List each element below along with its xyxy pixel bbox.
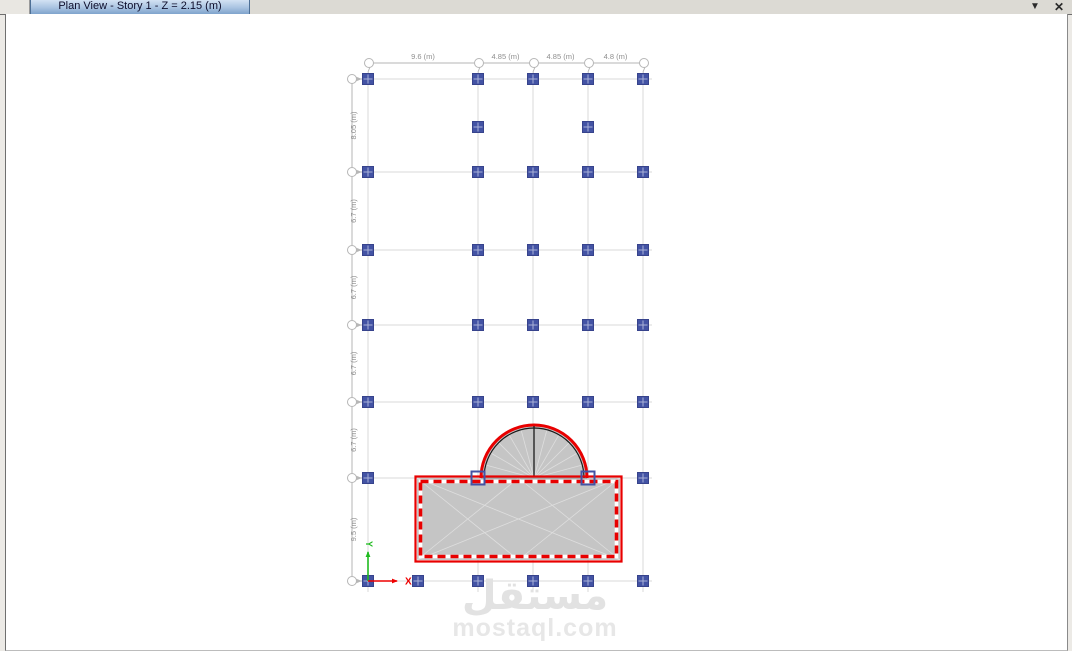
grid-bubble-top — [530, 59, 539, 68]
grid-bubble-left — [348, 168, 357, 177]
column-marker[interactable] — [473, 320, 484, 331]
x-axis-label: X — [405, 577, 412, 588]
y-axis-label: Y — [364, 541, 374, 547]
dimension-label-left: 6.7 (m) — [349, 199, 358, 223]
column-marker[interactable] — [583, 320, 594, 331]
column-marker[interactable] — [473, 74, 484, 85]
column-marker[interactable] — [473, 167, 484, 178]
column-marker[interactable] — [528, 167, 539, 178]
dimension-label-left: 6.7 (m) — [349, 351, 358, 375]
grid-bubble-left — [348, 577, 357, 586]
column-marker[interactable] — [583, 245, 594, 256]
grid-bubble-top — [475, 59, 484, 68]
grid-bubble-top — [640, 59, 649, 68]
column-marker[interactable] — [363, 397, 374, 408]
column-marker[interactable] — [473, 122, 484, 133]
dimension-label-left: 6.7 (m) — [349, 275, 358, 299]
column-marker[interactable] — [413, 576, 424, 587]
column-marker[interactable] — [583, 576, 594, 587]
grid-bubble-left — [348, 321, 357, 330]
column-marker[interactable] — [528, 576, 539, 587]
column-marker[interactable] — [473, 397, 484, 408]
column-marker[interactable] — [638, 74, 649, 85]
column-marker[interactable] — [363, 320, 374, 331]
column-marker[interactable] — [363, 473, 374, 484]
dimension-label-left: 9.5 (m) — [349, 517, 358, 541]
column-marker[interactable] — [583, 74, 594, 85]
grid-bubble-left — [348, 398, 357, 407]
column-marker[interactable] — [638, 473, 649, 484]
column-marker[interactable] — [528, 320, 539, 331]
grid-bubble-left — [348, 75, 357, 84]
column-marker[interactable] — [528, 245, 539, 256]
dimension-label-top: 9.6 (m) — [411, 52, 435, 61]
x-axis-arrowhead — [392, 579, 398, 584]
column-marker[interactable] — [638, 397, 649, 408]
column-marker[interactable] — [638, 245, 649, 256]
column-marker[interactable] — [638, 320, 649, 331]
dimension-label-left: 6.7 (m) — [349, 428, 358, 452]
column-marker[interactable] — [363, 167, 374, 178]
grid-bubble-left — [348, 474, 357, 483]
grid-bubble-left — [348, 246, 357, 255]
grid-bubble-top — [585, 59, 594, 68]
column-marker[interactable] — [473, 245, 484, 256]
column-marker[interactable] — [363, 74, 374, 85]
dimension-label-top: 4.85 (m) — [492, 52, 520, 61]
column-marker[interactable] — [583, 122, 594, 133]
column-marker[interactable] — [583, 167, 594, 178]
grid-bubble-top — [365, 59, 374, 68]
dimension-label-top: 4.85 (m) — [547, 52, 575, 61]
plan-drawing: 9.6 (m)4.85 (m)4.85 (m)4.8 (m)8.05 (m)6.… — [0, 0, 1072, 651]
y-axis-arrowhead — [366, 551, 371, 557]
dimension-label-top: 4.8 (m) — [604, 52, 628, 61]
column-marker[interactable] — [473, 576, 484, 587]
column-marker[interactable] — [583, 397, 594, 408]
column-marker[interactable] — [363, 245, 374, 256]
column-marker[interactable] — [528, 74, 539, 85]
column-marker[interactable] — [528, 397, 539, 408]
column-marker[interactable] — [638, 576, 649, 587]
column-marker[interactable] — [638, 167, 649, 178]
dimension-label-left: 8.05 (m) — [349, 111, 358, 139]
